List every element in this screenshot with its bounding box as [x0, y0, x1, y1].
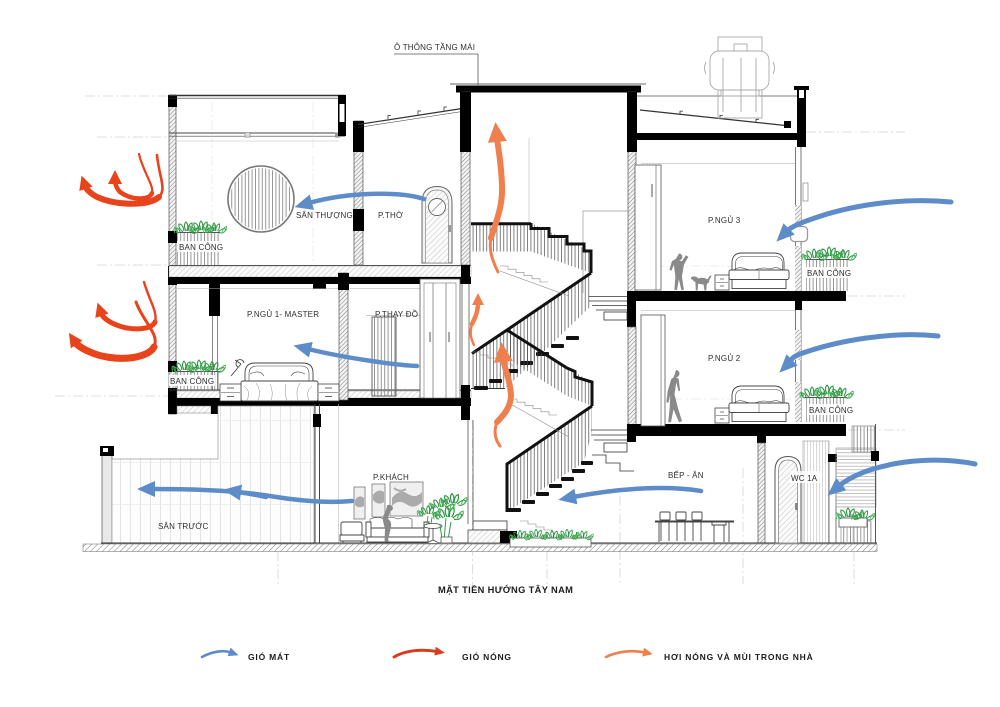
svg-text:BẾP - ĂN: BẾP - ĂN [668, 470, 704, 480]
svg-text:HƠI NÓNG VÀ MÙI TRONG NHÀ: HƠI NÓNG VÀ MÙI TRONG NHÀ [664, 651, 814, 662]
svg-text:MẶT TIỀN HƯỚNG TÂY NAM: MẶT TIỀN HƯỚNG TÂY NAM [438, 584, 573, 595]
svg-text:BAN CÔNG: BAN CÔNG [807, 269, 851, 278]
svg-text:P.KHÁCH: P.KHÁCH [373, 473, 409, 482]
svg-text:SÂN TRƯỚC: SÂN TRƯỚC [158, 522, 208, 531]
svg-text:P.NGỦ 3: P.NGỦ 3 [708, 216, 741, 225]
svg-text:P.NGỦ 2: P.NGỦ 2 [708, 354, 741, 363]
svg-text:WC 1A: WC 1A [791, 474, 818, 483]
svg-text:Ô THÔNG TẦNG MÁI: Ô THÔNG TẦNG MÁI [394, 42, 475, 52]
svg-text:GIÓ MÁT: GIÓ MÁT [248, 651, 290, 662]
svg-text:BAN CÔNG: BAN CÔNG [170, 377, 214, 386]
svg-text:BAN CÔNG: BAN CÔNG [179, 243, 223, 252]
svg-text:P.THỜ: P.THỜ [378, 211, 403, 220]
svg-text:GIÓ NÓNG: GIÓ NÓNG [462, 651, 512, 662]
svg-text:SÂN THƯỢNG: SÂN THƯỢNG [296, 211, 353, 220]
svg-text:P.NGỦ 1- MASTER: P.NGỦ 1- MASTER [247, 310, 319, 319]
svg-text:P.THAY ĐỒ: P.THAY ĐỒ [375, 309, 418, 319]
svg-text:BAN CÔNG: BAN CÔNG [809, 406, 853, 415]
